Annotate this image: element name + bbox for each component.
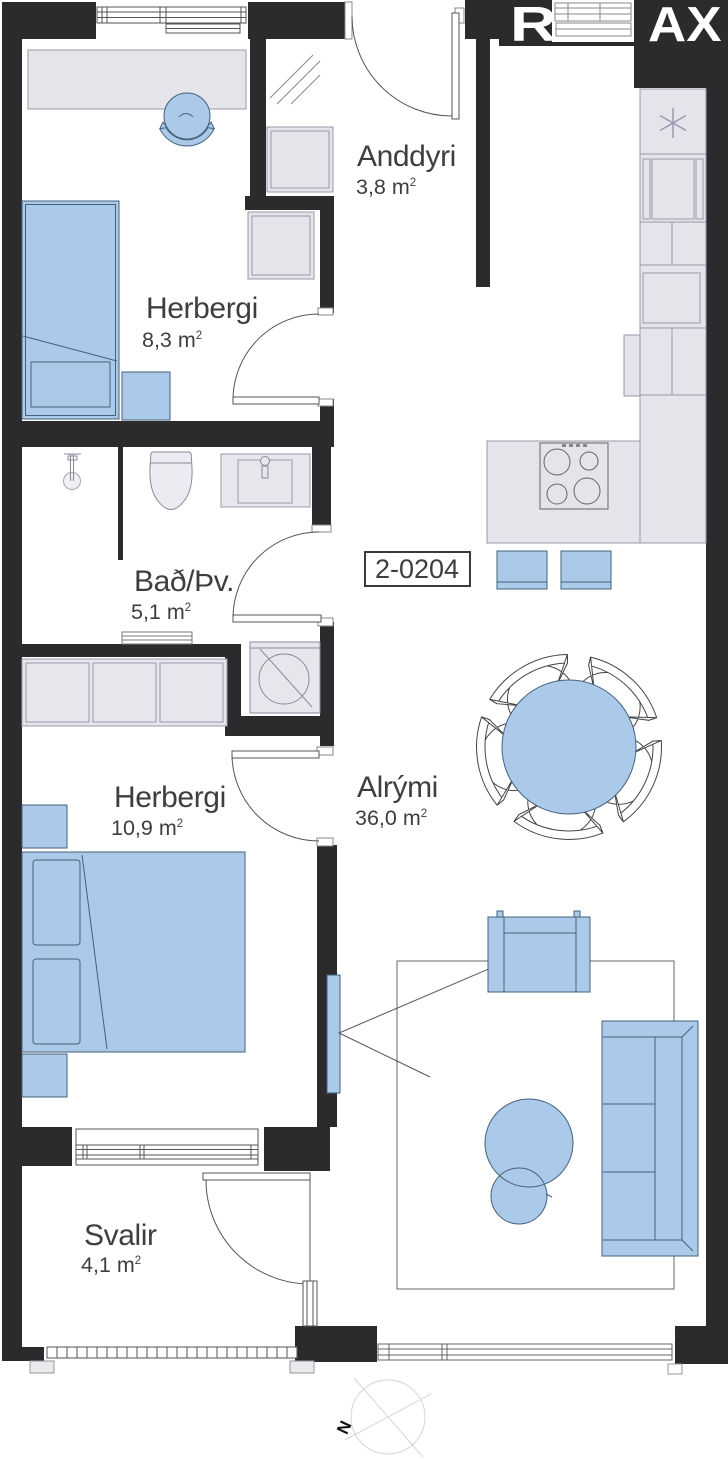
svg-text:Anddyri: Anddyri [357, 140, 456, 173]
svg-text:5,1 m2: 5,1 m2 [131, 600, 191, 624]
svg-text:3,8 m2: 3,8 m2 [356, 175, 416, 199]
svg-text:10,9 m2: 10,9 m2 [111, 816, 183, 840]
svg-text:8,3 m2: 8,3 m2 [142, 328, 202, 352]
svg-text:Alrými: Alrými [357, 771, 438, 804]
svg-text:AX: AX [648, 0, 721, 52]
svg-text:36,0 m2: 36,0 m2 [355, 806, 427, 830]
svg-text:4,1 m2: 4,1 m2 [81, 1253, 141, 1277]
svg-text:Svalir: Svalir [84, 1219, 157, 1252]
svg-text:Bað/Þv.: Bað/Þv. [134, 565, 234, 598]
svg-text:2-0204: 2-0204 [375, 554, 459, 584]
svg-text:Herbergi: Herbergi [114, 781, 226, 814]
svg-text:R: R [510, 0, 557, 52]
svg-text:Herbergi: Herbergi [146, 292, 258, 325]
